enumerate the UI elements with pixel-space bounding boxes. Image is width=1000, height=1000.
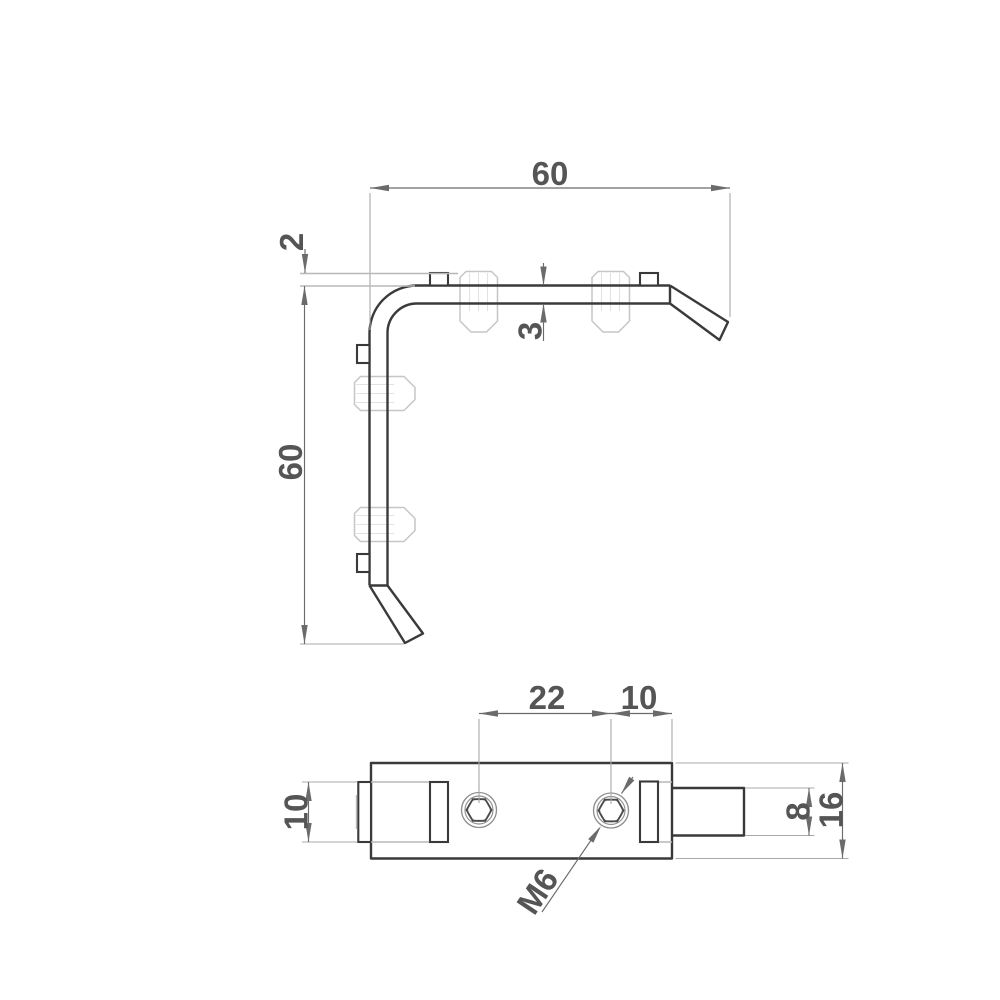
left-tab	[358, 782, 371, 842]
tab-top-1	[430, 273, 448, 286]
dim-label-tab-width: 10	[278, 794, 315, 831]
front-view: 60 2 60 3	[272, 155, 730, 644]
thread-label: M6	[509, 862, 565, 921]
phantom-fastener-left-1	[355, 377, 416, 411]
dim-height-60: 60	[272, 286, 404, 644]
profile-body	[371, 763, 672, 859]
dim-label-height: 60	[272, 444, 309, 481]
slot-left	[430, 782, 448, 842]
dim-label-profile-height: 16	[813, 792, 850, 829]
bottom-view: 22 10 10 8 16	[278, 679, 850, 921]
dim-label-hole-spacing: 22	[529, 679, 566, 716]
bracket-outline	[370, 286, 729, 644]
phantom-fastener-left-2	[355, 508, 416, 542]
dim-label-tab-offset: 2	[273, 233, 310, 251]
dim-tab-width-10: 10	[278, 782, 358, 842]
drawing-canvas: 60 2 60 3	[0, 0, 1000, 1000]
tab-left-2	[357, 554, 370, 572]
right-foot	[670, 286, 728, 341]
groove-lines	[371, 782, 672, 842]
phantom-fastener-top-2	[592, 272, 630, 333]
right-stud	[672, 788, 744, 836]
dim-label-width: 60	[532, 155, 569, 192]
slot-right	[640, 782, 658, 843]
tab-left-1	[357, 345, 370, 363]
dim-label-hole-to-edge: 10	[621, 679, 658, 716]
dim-label-stud-height: 8	[780, 802, 817, 820]
dim-thickness-3: 3	[512, 263, 549, 341]
phantom-fastener-top-1	[460, 272, 498, 333]
dim-label-thickness: 3	[512, 322, 549, 340]
tab-top-2	[640, 273, 658, 286]
dim-stud-height-8: 8	[745, 788, 817, 836]
bottom-foot	[370, 586, 424, 644]
dim-profile-height-16: 16	[676, 763, 850, 859]
technical-drawing: 60 2 60 3	[0, 0, 1000, 1000]
thread-callout-m6: M6	[509, 777, 634, 921]
